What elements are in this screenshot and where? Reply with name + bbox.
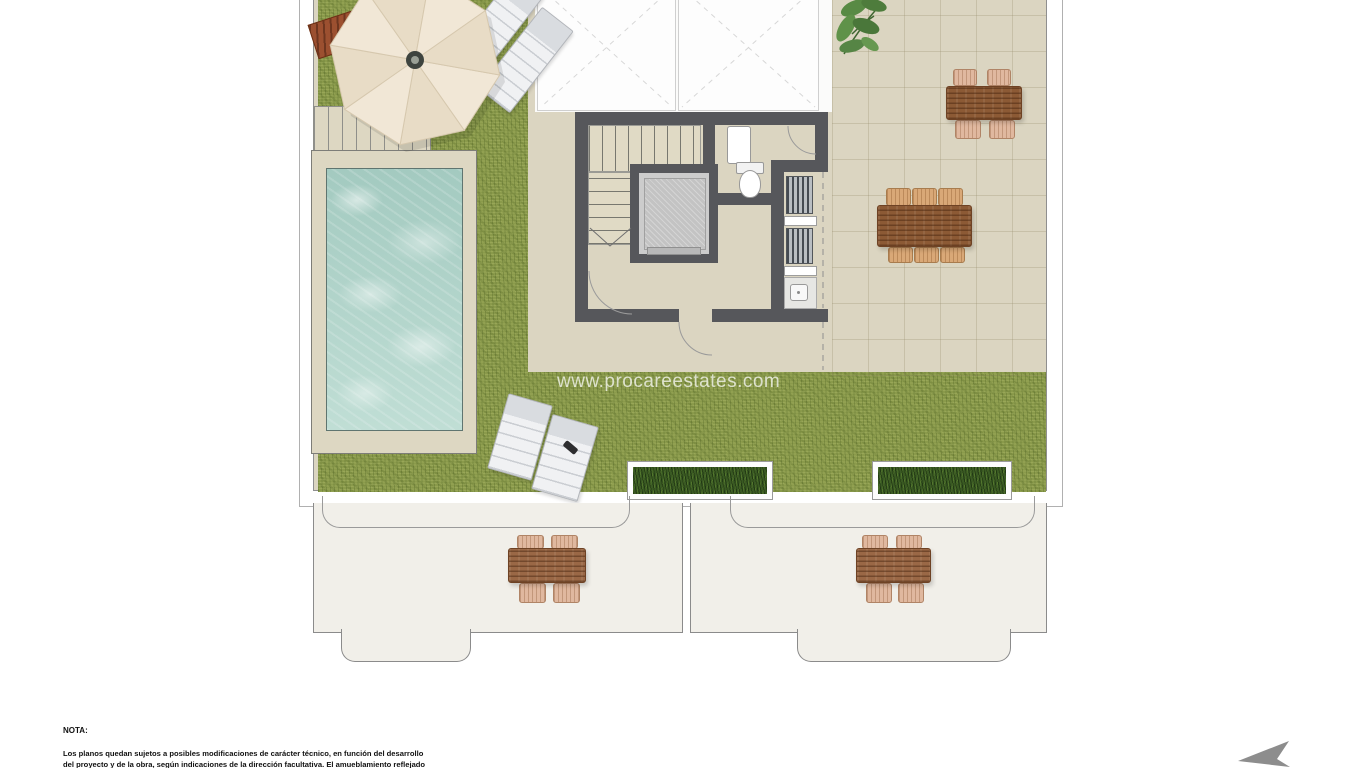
chair	[519, 583, 546, 603]
terrace-step-notch	[341, 629, 471, 662]
chair	[938, 188, 963, 206]
chair	[888, 247, 913, 263]
chair	[898, 583, 924, 603]
chair	[896, 535, 922, 549]
seam-cover	[800, 628, 1008, 632]
chair	[862, 535, 888, 549]
awning-outline	[730, 496, 1035, 528]
chair	[866, 583, 892, 603]
dining-table	[856, 548, 931, 583]
chair	[953, 69, 977, 86]
chair	[551, 535, 578, 549]
chair	[886, 188, 911, 206]
north-arrow-icon	[1228, 735, 1308, 768]
chair	[914, 247, 939, 263]
terrace-step-notch	[797, 629, 1011, 662]
awning-outline	[322, 496, 630, 528]
note-line-1: Los planos quedan sujetos a posibles mod…	[63, 748, 443, 759]
planter-plants	[633, 467, 767, 494]
dashed-x-icon	[679, 0, 818, 110]
planter	[627, 461, 773, 500]
swimming-pool	[326, 168, 463, 431]
note-title: NOTA:	[63, 726, 88, 735]
seam-cover	[344, 628, 468, 632]
chair	[553, 583, 580, 603]
dining-table	[877, 205, 972, 247]
chair	[987, 69, 1011, 86]
chair	[989, 120, 1015, 139]
note-line-2: del proyecto y de la obra, según indicac…	[63, 759, 443, 768]
watermark: www.procareestates.com	[557, 371, 827, 393]
dining-table	[508, 548, 586, 583]
chair	[517, 535, 544, 549]
planter-plants	[878, 467, 1006, 494]
planter	[872, 461, 1012, 500]
note-text: Los planos quedan sujetos a posibles mod…	[63, 748, 443, 768]
chair	[940, 247, 965, 263]
dashed-x-icon	[538, 0, 675, 110]
floor-plan-page: www.procareestates.com NOTA: Los planos …	[0, 0, 1366, 768]
parasol-icon	[325, 0, 510, 158]
dining-table	[946, 86, 1022, 120]
chair	[955, 120, 981, 139]
chair	[912, 188, 937, 206]
plant-icon	[824, 0, 914, 72]
door-swing-arcs	[560, 95, 860, 385]
